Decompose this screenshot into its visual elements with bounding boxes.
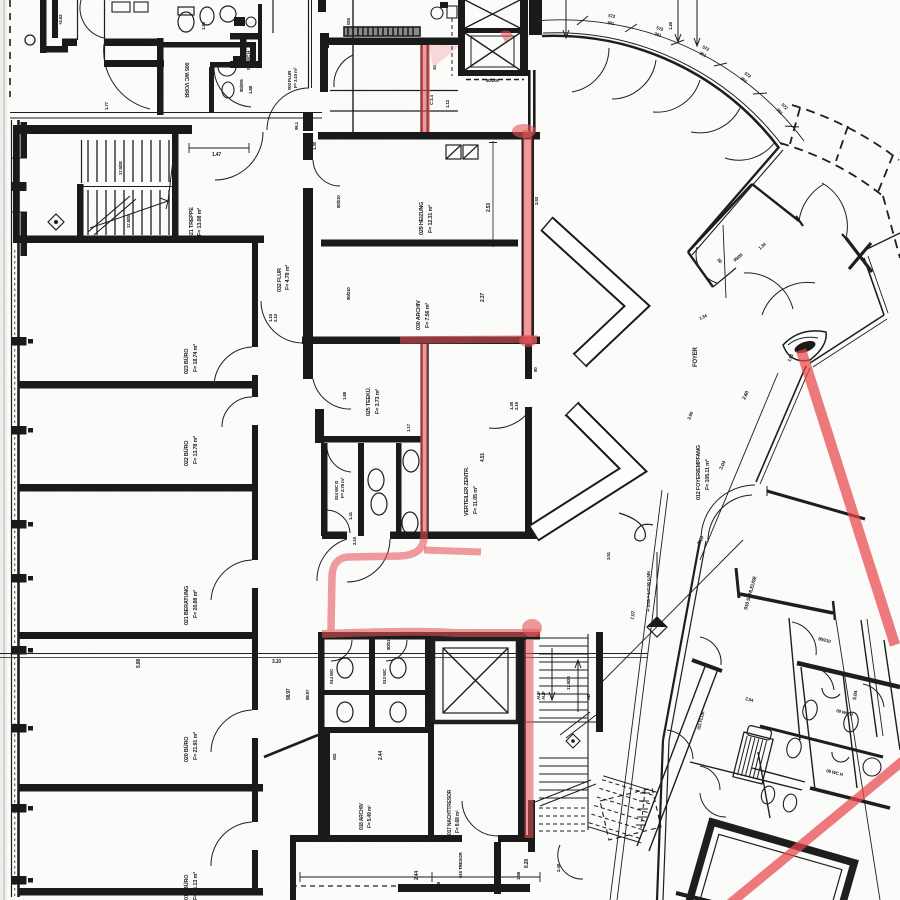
svg-text:2.37: 2.37: [480, 293, 486, 302]
svg-text:013 WC: 013 WC: [382, 668, 387, 684]
svg-text:3.51: 3.51: [606, 551, 611, 560]
svg-text:005 WC VORR: 005 WC VORR: [183, 62, 189, 97]
svg-text:+2.62: +2.62: [58, 14, 63, 25]
svg-text:F= 2.78 m²: F= 2.78 m²: [340, 477, 345, 498]
svg-text:021 TREPPE: 021 TREPPE: [189, 207, 195, 238]
svg-text:80/205: 80/205: [239, 79, 244, 92]
svg-text:F= 5.20 m²: F= 5.20 m²: [252, 47, 257, 68]
svg-text:025 TEEKÜ.: 025 TEEKÜ.: [365, 386, 372, 416]
svg-text:F= 5.49 m²: F= 5.49 m²: [367, 805, 373, 828]
svg-text:F= 105.11 m²: F= 105.11 m²: [704, 459, 711, 490]
svg-text:014 WC: 014 WC: [329, 668, 334, 684]
svg-text:W2: W2: [332, 753, 337, 760]
svg-text:1.77: 1.77: [104, 101, 109, 110]
svg-text:5.98: 5.98: [136, 659, 142, 668]
svg-text:2.10: 2.10: [273, 313, 278, 322]
svg-text:026: 026: [346, 17, 351, 25]
svg-text:2.53: 2.53: [534, 196, 539, 205]
svg-text:88.97: 88.97: [305, 689, 310, 700]
svg-text:F= 13.08 m²: F= 13.08 m²: [196, 208, 203, 236]
svg-text:1.08: 1.08: [516, 871, 521, 880]
svg-text:019 BÜRO: 019 BÜRO: [183, 874, 190, 900]
svg-text:016 TRESOR: 016 TRESOR: [458, 852, 463, 878]
svg-text:17.5/28: 17.5/28: [118, 161, 123, 175]
svg-text:80/210: 80/210: [346, 287, 351, 300]
svg-text:F= 3.10 m²: F= 3.10 m²: [293, 67, 298, 88]
svg-text:021 BERATUNG: 021 BERATUNG: [184, 586, 190, 625]
svg-text:018 ARCHIV: 018 ARCHIV: [359, 802, 365, 830]
svg-text:VERTEILER ZENTR.: VERTEILER ZENTR.: [464, 466, 470, 516]
svg-text:80: 80: [533, 367, 538, 372]
svg-text:024 WC D: 024 WC D: [334, 480, 339, 500]
svg-text:3.10: 3.10: [272, 659, 281, 665]
svg-text:020 BÜRO: 020 BÜRO: [183, 736, 190, 762]
svg-text:003 FLUR: 003 FLUR: [287, 70, 292, 90]
svg-text:029 HEIZUNG: 029 HEIZUNG: [419, 202, 425, 235]
svg-text:2.53: 2.53: [486, 203, 492, 212]
svg-text:1.41: 1.41: [348, 511, 353, 520]
svg-text:1.12: 1.12: [445, 99, 450, 108]
svg-text:F= 12.31 m²: F= 12.31 m²: [427, 205, 434, 233]
svg-text:F= 20.88 m²: F= 20.88 m²: [192, 590, 199, 618]
svg-text:F= 13.78 m²: F= 13.78 m²: [192, 436, 199, 464]
svg-text:F= 11.05 m²: F= 11.05 m²: [472, 486, 479, 514]
svg-text:4.51: 4.51: [480, 453, 486, 462]
svg-text:98.97: 98.97: [286, 688, 292, 700]
svg-text:FOYER: FOYER: [693, 346, 699, 367]
svg-text:032 FLUR: 032 FLUR: [277, 268, 283, 292]
svg-text:017 NACHTTRESOR: 017 NACHTTRESOR: [447, 789, 453, 835]
svg-text:F= 7.56 m²: F= 7.56 m²: [424, 303, 431, 328]
svg-text:2.10: 2.10: [514, 401, 519, 410]
svg-text:F= 3.73 m²: F= 3.73 m²: [374, 389, 381, 414]
svg-text:F= 21.13 m²: F= 21.13 m²: [192, 872, 199, 900]
svg-text:2.44: 2.44: [414, 871, 420, 880]
svg-text:004 WC H: 004 WC H: [246, 51, 251, 70]
svg-text:1.47: 1.47: [212, 152, 221, 158]
svg-text:F= 21.91 m²: F= 21.91 m²: [192, 732, 199, 760]
svg-text:1.17: 1.17: [406, 423, 411, 432]
svg-text:1.88: 1.88: [248, 85, 253, 94]
svg-text:7.07: 7.07: [630, 610, 637, 620]
svg-text:012 FOYER/EMPFANG: 012 FOYER/EMPFANG: [696, 445, 702, 500]
svg-text:2.44: 2.44: [378, 751, 384, 760]
svg-text:17.5/28: 17.5/28: [126, 214, 131, 228]
svg-text:022 BÜRO: 022 BÜRO: [183, 440, 190, 466]
svg-text:F= 8.68 m²: F= 8.68 m²: [455, 810, 461, 833]
svg-text:8.28: 8.28: [524, 859, 530, 868]
svg-text:AB: AB: [586, 693, 591, 700]
svg-text:1.26: 1.26: [668, 21, 673, 30]
svg-text:+- 0.00 = 147.50 ü.NN: +- 0.00 = 147.50 ü.NN: [646, 571, 651, 612]
svg-text:F= 4.78 m²: F= 4.78 m²: [284, 265, 291, 290]
svg-text:2.10: 2.10: [352, 536, 357, 545]
svg-text:AUF: AUF: [541, 691, 546, 700]
svg-text:80/210: 80/210: [336, 195, 341, 208]
svg-text:95.1: 95.1: [294, 121, 299, 130]
svg-text:1.88: 1.88: [201, 21, 206, 30]
svg-text:F= 18.74 m²: F= 18.74 m²: [192, 344, 199, 372]
svg-text:030 ARCHIV: 030 ARCHIV: [416, 300, 422, 330]
svg-text:023 BÜRO: 023 BÜRO: [183, 348, 190, 374]
svg-text:17.5/28: 17.5/28: [566, 676, 571, 690]
svg-text:1.88: 1.88: [342, 391, 347, 400]
